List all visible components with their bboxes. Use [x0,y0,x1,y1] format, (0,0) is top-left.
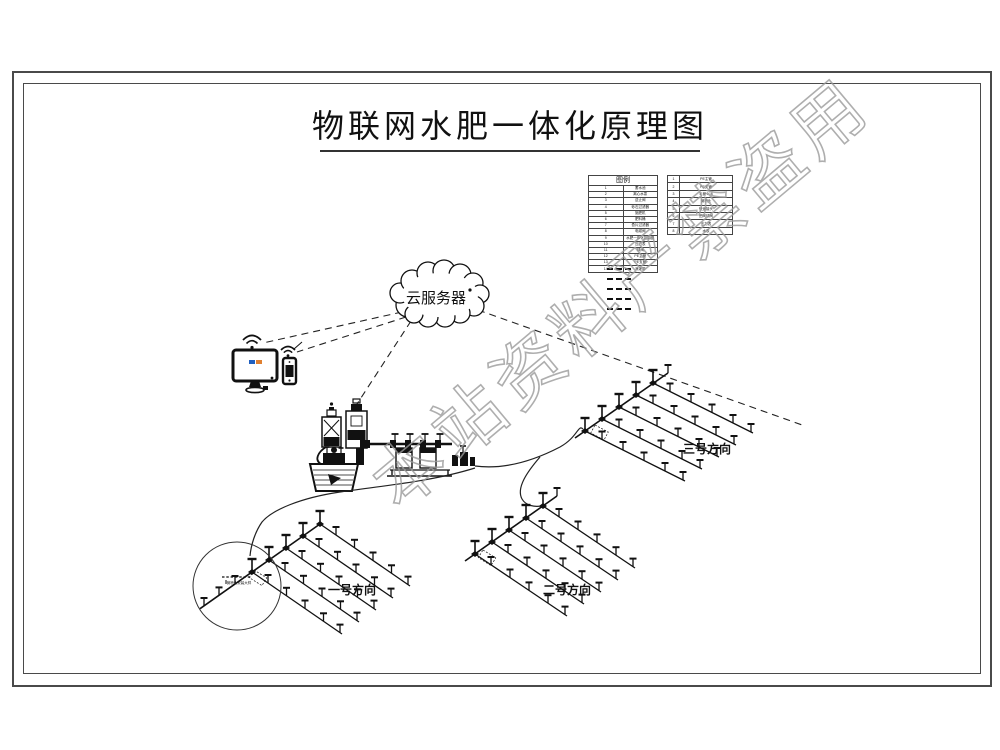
table-row: 1PE主管 [668,176,733,183]
linetype-swatch [607,278,631,280]
table-row: 7压力表 [668,220,733,227]
table-row: 5快速接头 [668,205,733,212]
spec-table: 1PE主管 2PE支管 3毛管Φ16 4微喷头 5快速接头 6田间球阀 7压力表… [667,175,733,235]
legend-header: 图例 [589,176,658,186]
title-underline [320,150,700,152]
drawing-inner-border [23,83,981,674]
table-row: 2PE支管 [668,183,733,190]
table-row: 4微喷头 [668,198,733,205]
linetype-swatch [607,308,631,310]
legend-table: 图例 1蓄水池 2离心水泵 3逆止阀 4砂石过滤器 5施肥机 6肥料桶 7叠片过… [588,175,658,273]
drawing-page: 物联网水肥一体化原理图 图例 1蓄水池 2离心水泵 3逆止阀 4砂石过滤器 5施… [0,0,1000,750]
table-row: 3毛管Φ16 [668,190,733,197]
linetype-swatch [607,268,631,270]
linetype-swatch [607,298,631,300]
table-row: 8水表 [668,227,733,234]
table-row: 6田间球阀 [668,212,733,219]
page-title: 物联网水肥一体化原理图 [260,101,760,147]
linetype-swatch [607,288,631,290]
